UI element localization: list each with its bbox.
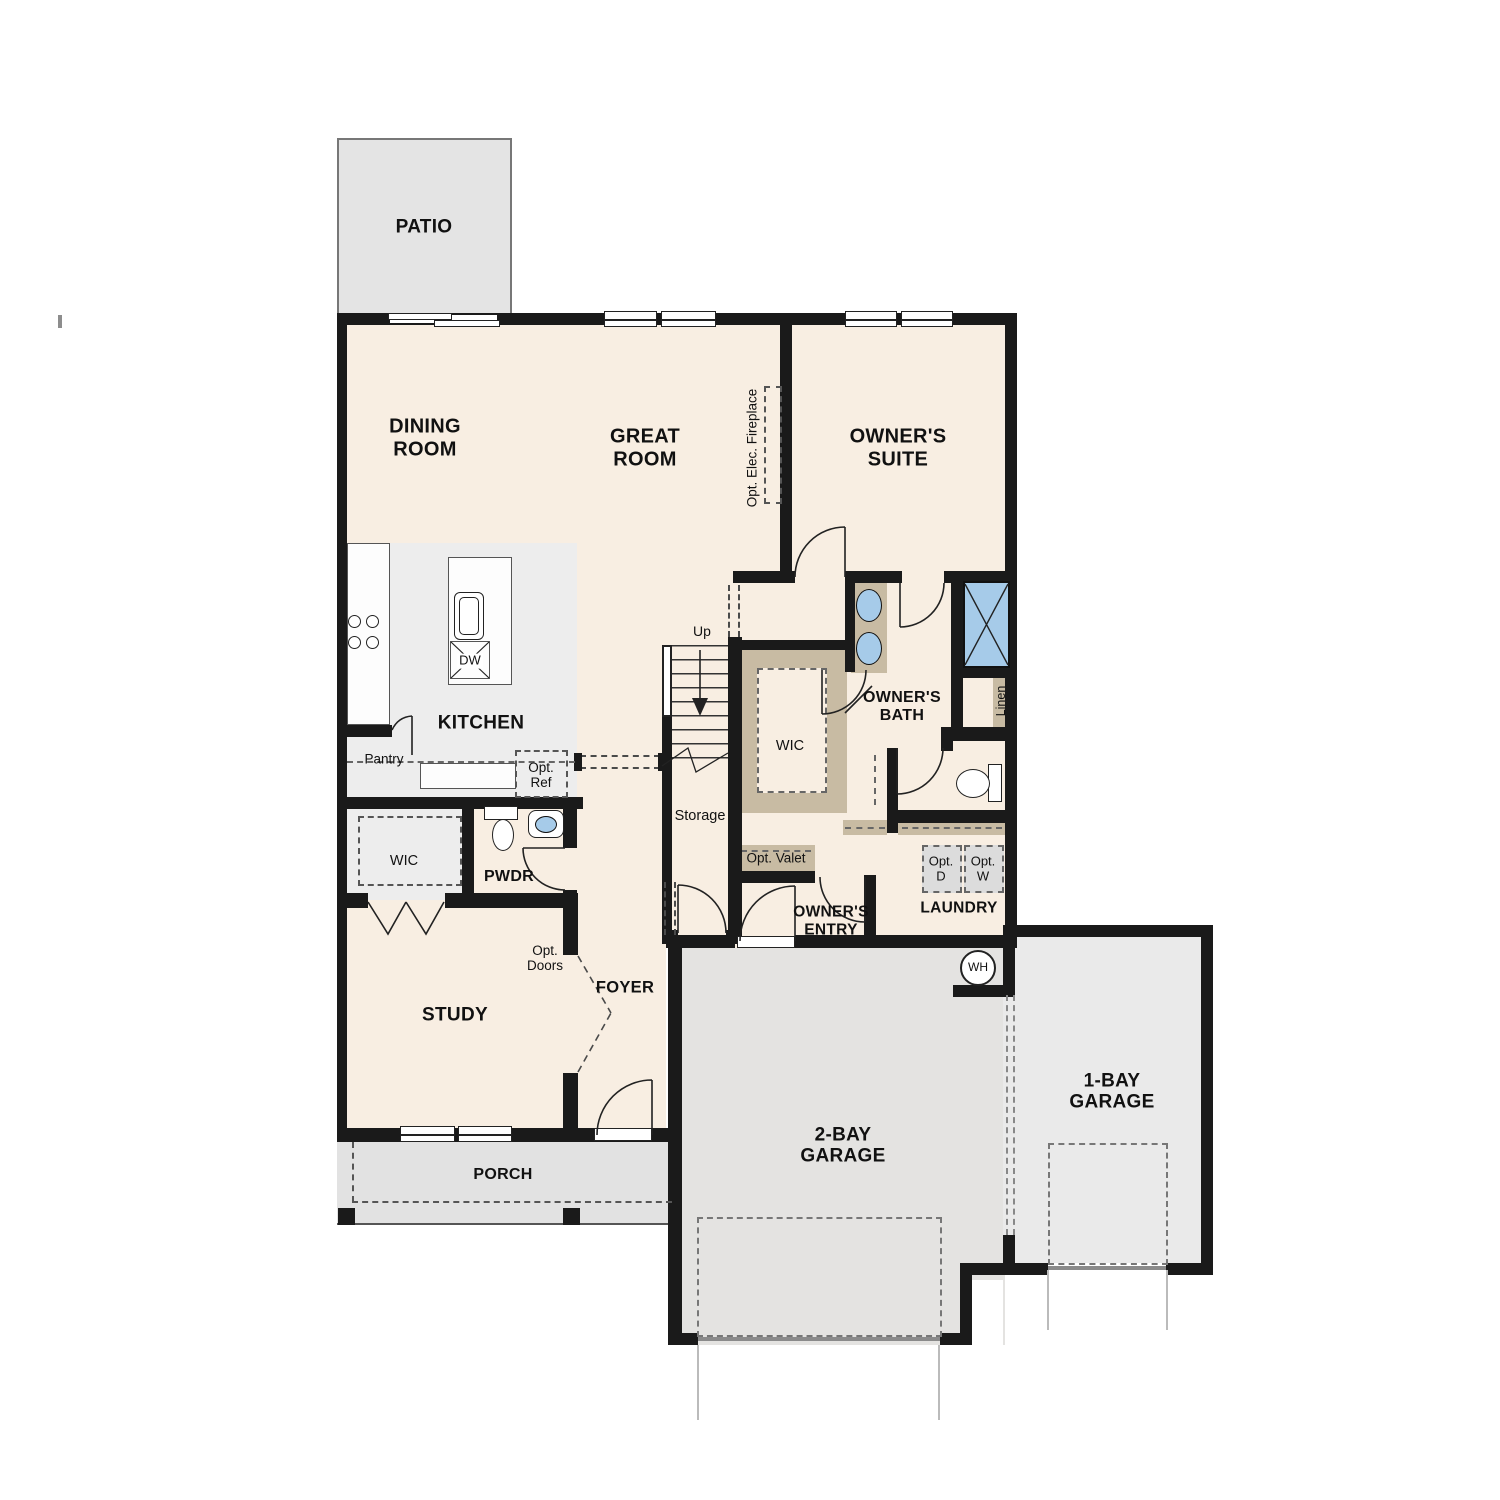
annotation-dishwasher: DW — [457, 654, 483, 669]
wall — [728, 637, 742, 937]
room-label-wic-left: WIC — [390, 853, 418, 869]
wall — [960, 1263, 1006, 1275]
wall — [445, 893, 578, 908]
annotation-fireplace: Opt. Elec. Fireplace — [744, 389, 759, 508]
apron-line — [697, 1345, 699, 1420]
wall — [845, 577, 855, 672]
wall — [733, 571, 795, 583]
wall — [960, 1268, 972, 1345]
room-label-garage-1bay: 1-BAY GARAGE — [1069, 1071, 1154, 1114]
garage-separation-dash — [1013, 995, 1015, 1235]
window — [604, 311, 657, 327]
vanity-sink — [856, 632, 882, 665]
toilet-tank — [988, 764, 1002, 802]
sliding-door-panel — [434, 320, 500, 327]
wall — [730, 640, 853, 650]
cooktop-burner — [348, 636, 361, 649]
laundry-counter-dash — [902, 827, 1002, 829]
wall — [666, 935, 735, 948]
wall — [897, 810, 1007, 823]
island-sink-basin — [459, 597, 479, 635]
room-label-laundry: LAUNDRY — [920, 899, 997, 917]
window — [458, 1126, 512, 1142]
cooktop-burner — [366, 615, 379, 628]
apron-line — [1047, 1270, 1049, 1330]
wall — [1201, 925, 1213, 1275]
room-label-porch: PORCH — [473, 1166, 532, 1184]
room-label-garage-2bay: 2-BAY GARAGE — [800, 1125, 885, 1168]
shower — [963, 581, 1010, 668]
annotation-linen: Linen — [994, 686, 1008, 717]
toilet-bowl — [956, 769, 990, 798]
cased-opening — [664, 882, 676, 935]
wall — [951, 678, 963, 727]
wall — [337, 725, 392, 737]
front-door-leaf — [594, 1128, 652, 1141]
room-label-study: STUDY — [422, 1004, 488, 1025]
study-foyer-floor — [347, 948, 666, 1142]
scale-tick — [58, 315, 62, 328]
wall — [462, 806, 474, 900]
annotation-opt-ref: Opt. Ref — [528, 760, 554, 791]
room-label-patio: PATIO — [396, 216, 453, 237]
room-label-great: GREAT ROOM — [610, 425, 680, 470]
wic-inner-floor — [757, 668, 827, 793]
vanity-sink — [856, 589, 882, 622]
room-label-owners-bath: OWNER'S BATH — [863, 689, 941, 725]
garage1-door-dash — [1048, 1143, 1168, 1265]
floor-plan: PATIO DINING ROOM GREAT ROOM OWNER'S SUI… — [0, 0, 1500, 1500]
window — [901, 311, 953, 327]
wall — [1015, 925, 1213, 937]
wall — [337, 893, 368, 908]
annotation-opt-valet: Opt. Valet — [746, 850, 805, 865]
wic-left-shelf-dash — [358, 816, 462, 886]
room-label-pwdr: PWDR — [484, 868, 534, 886]
annotation-pantry: Pantry — [364, 751, 403, 766]
garage2-door-dash — [697, 1217, 942, 1337]
exterior-patch — [972, 1280, 1003, 1345]
window — [845, 311, 897, 327]
window — [661, 311, 716, 327]
porch-dash — [352, 1201, 672, 1203]
porch-post — [563, 1208, 580, 1225]
laundry-counter-dash2 — [845, 827, 885, 829]
garage-door-sill — [698, 1337, 940, 1341]
garage-door-sill — [1048, 1266, 1166, 1270]
pwdr-sink-basin — [535, 816, 557, 833]
cooktop-burner — [366, 636, 379, 649]
wall — [668, 1333, 698, 1345]
annotation-opt-washer: Opt. W — [971, 854, 996, 883]
apron-line — [1166, 1270, 1168, 1330]
hall-dash — [874, 755, 876, 805]
apron-line — [938, 1345, 940, 1420]
cased-opening — [728, 585, 740, 637]
annotation-opt-doors: Opt. Doors — [527, 943, 563, 974]
wall — [337, 797, 583, 809]
wall — [941, 727, 953, 751]
wall — [574, 753, 582, 771]
wall — [951, 727, 1017, 741]
garage-separation-dash — [1006, 995, 1008, 1235]
kitchen-counter-bottom — [420, 763, 516, 789]
cased-opening — [580, 755, 660, 769]
wall — [658, 753, 666, 771]
kitchen-counter-left — [347, 543, 390, 725]
opt-fireplace-box — [764, 386, 782, 504]
room-label-owners-entry: OWNER'S ENTRY — [793, 904, 869, 939]
stair-treads — [672, 645, 728, 771]
cooktop-burner — [348, 615, 361, 628]
room-label-wic-center: WIC — [776, 738, 804, 754]
room-label-storage: Storage — [675, 808, 726, 824]
annotation-water-heater: WH — [968, 961, 988, 975]
wall — [951, 581, 963, 668]
room-label-owners-suite: OWNER'S SUITE — [850, 425, 947, 470]
garage-entry-door-leaf — [737, 936, 795, 948]
toilet-tank — [484, 806, 518, 820]
window — [400, 1126, 455, 1142]
wall — [742, 871, 815, 883]
wall — [563, 806, 577, 848]
porch-dash — [352, 1142, 354, 1202]
room-label-foyer: FOYER — [596, 979, 654, 998]
wall — [668, 948, 682, 1345]
annotation-opt-dryer: Opt. D — [929, 854, 954, 883]
sliding-door-panel — [388, 313, 452, 320]
room-label-kitchen: KITCHEN — [438, 712, 525, 733]
room-label-dining: DINING ROOM — [389, 415, 461, 460]
annotation-stairs-up: Up — [693, 624, 711, 640]
wall — [563, 908, 578, 955]
wall — [1166, 1263, 1213, 1275]
porch-post — [338, 1208, 355, 1225]
toilet-bowl — [492, 819, 514, 851]
stair-handrail — [662, 645, 672, 717]
